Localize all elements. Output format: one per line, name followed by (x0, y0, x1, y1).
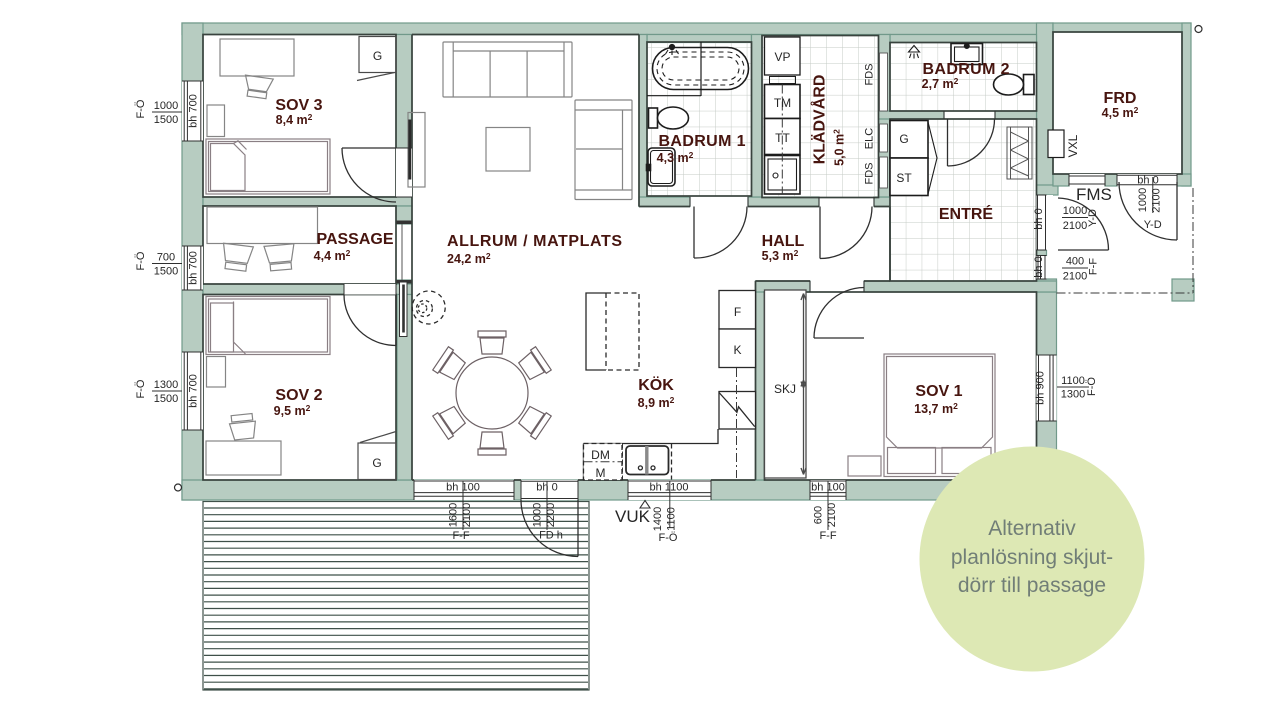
svg-text:1300: 1300 (1061, 389, 1085, 401)
svg-text:FDS: FDS (864, 64, 876, 86)
svg-text:SOV 3: SOV 3 (275, 97, 322, 114)
svg-text:TT: TT (775, 131, 790, 145)
svg-text:F-Ö: F-Ö (659, 532, 678, 544)
svg-text:F-Ö: F-Ö (1086, 377, 1098, 396)
svg-text:FD h: FD h (539, 530, 563, 542)
svg-text:DM: DM (591, 448, 610, 462)
svg-text:SOV 2: SOV 2 (275, 387, 322, 404)
svg-text:600: 600 (813, 506, 825, 524)
svg-text:2100: 2100 (826, 503, 838, 527)
svg-text:2,7 m2: 2,7 m2 (922, 76, 959, 91)
svg-text:FMS: FMS (1076, 185, 1112, 204)
svg-text:1000: 1000 (154, 100, 178, 112)
svg-text:F: F (734, 305, 741, 319)
svg-text:Alternativ: Alternativ (988, 517, 1076, 540)
svg-text:5,0 m2: 5,0 m2 (832, 129, 847, 166)
svg-text:PASSAGE: PASSAGE (316, 231, 393, 248)
svg-text:1500: 1500 (154, 393, 178, 405)
svg-text:5,3 m2: 5,3 m2 (762, 248, 799, 263)
svg-text:BADRUM 2: BADRUM 2 (923, 61, 1010, 78)
svg-text:1300: 1300 (154, 379, 178, 391)
svg-text:VXL: VXL (1066, 134, 1080, 157)
svg-text:F-F: F-F (1088, 258, 1100, 275)
svg-text:F-Ö: F-Ö (135, 251, 147, 270)
svg-text:bh 700: bh 700 (188, 251, 200, 285)
svg-text:bh 0: bh 0 (1033, 256, 1045, 277)
svg-text:ENTRÉ: ENTRÉ (939, 204, 994, 223)
svg-text:400: 400 (1066, 256, 1084, 268)
svg-text:8,4 m2: 8,4 m2 (276, 112, 313, 127)
svg-text:F-Ö: F-Ö (135, 379, 147, 398)
svg-text:FDS: FDS (864, 163, 876, 185)
svg-text:700: 700 (157, 252, 175, 264)
svg-text:FRD: FRD (1104, 90, 1137, 107)
svg-text:dörr till passage: dörr till passage (958, 574, 1106, 597)
svg-text:BADRUM 1: BADRUM 1 (659, 133, 746, 150)
svg-text:1100: 1100 (1061, 375, 1085, 387)
svg-text:K: K (733, 343, 741, 357)
svg-text:4,5 m2: 4,5 m2 (1102, 105, 1139, 120)
svg-text:2100: 2100 (1063, 271, 1087, 283)
svg-text:ALLRUM / MATPLATS: ALLRUM / MATPLATS (447, 233, 622, 250)
svg-text:2100: 2100 (1151, 188, 1163, 212)
svg-text:VUK: VUK (615, 507, 651, 526)
svg-text:1000: 1000 (532, 503, 544, 527)
svg-text:F-F: F-F (452, 530, 469, 542)
svg-text:KÖK: KÖK (638, 375, 674, 394)
svg-text:KLÄDVÅRD: KLÄDVÅRD (810, 75, 829, 165)
svg-text:1600: 1600 (448, 503, 460, 527)
svg-text:ELC: ELC (864, 128, 876, 149)
svg-text:4,3 m2: 4,3 m2 (657, 150, 694, 165)
svg-text:2100: 2100 (1063, 220, 1087, 232)
svg-text:bh 0: bh 0 (1137, 175, 1158, 187)
svg-text:TM: TM (774, 96, 791, 110)
svg-text:M: M (596, 466, 606, 480)
svg-text:VP: VP (774, 50, 790, 64)
svg-text:8,9 m2: 8,9 m2 (638, 395, 675, 410)
svg-text:SKJ: SKJ (774, 382, 796, 396)
svg-text:ST: ST (896, 171, 912, 185)
svg-text:1000: 1000 (1063, 205, 1087, 217)
svg-text:bh 1100: bh 1100 (650, 482, 689, 494)
svg-text:2100: 2100 (461, 503, 473, 527)
svg-text:bh 700: bh 700 (188, 94, 200, 128)
svg-text:9,5 m2: 9,5 m2 (274, 403, 311, 418)
svg-text:1400: 1400 (652, 507, 664, 531)
svg-text:SOV 1: SOV 1 (915, 383, 962, 400)
svg-text:planlösning skjut-: planlösning skjut- (951, 546, 1113, 569)
svg-text:G: G (899, 132, 908, 146)
svg-text:1500: 1500 (154, 114, 178, 126)
svg-text:24,2 m2: 24,2 m2 (447, 251, 491, 266)
svg-text:G: G (373, 49, 382, 63)
svg-text:4,4 m2: 4,4 m2 (314, 248, 351, 263)
svg-text:F-F: F-F (819, 530, 836, 542)
svg-text:G: G (372, 456, 381, 470)
svg-text:Y-D: Y-D (1144, 219, 1162, 231)
svg-text:F-Ö: F-Ö (135, 99, 147, 118)
svg-text:bh 0: bh 0 (1033, 208, 1045, 229)
svg-text:13,7 m2: 13,7 m2 (914, 401, 958, 416)
svg-text:bh 700: bh 700 (188, 374, 200, 408)
svg-text:bh 900: bh 900 (1035, 371, 1047, 405)
svg-text:1100: 1100 (666, 507, 678, 531)
svg-text:2200: 2200 (545, 503, 557, 527)
svg-text:Y-D: Y-D (1087, 209, 1099, 227)
svg-text:1000: 1000 (1137, 188, 1149, 212)
svg-text:1500: 1500 (154, 266, 178, 278)
